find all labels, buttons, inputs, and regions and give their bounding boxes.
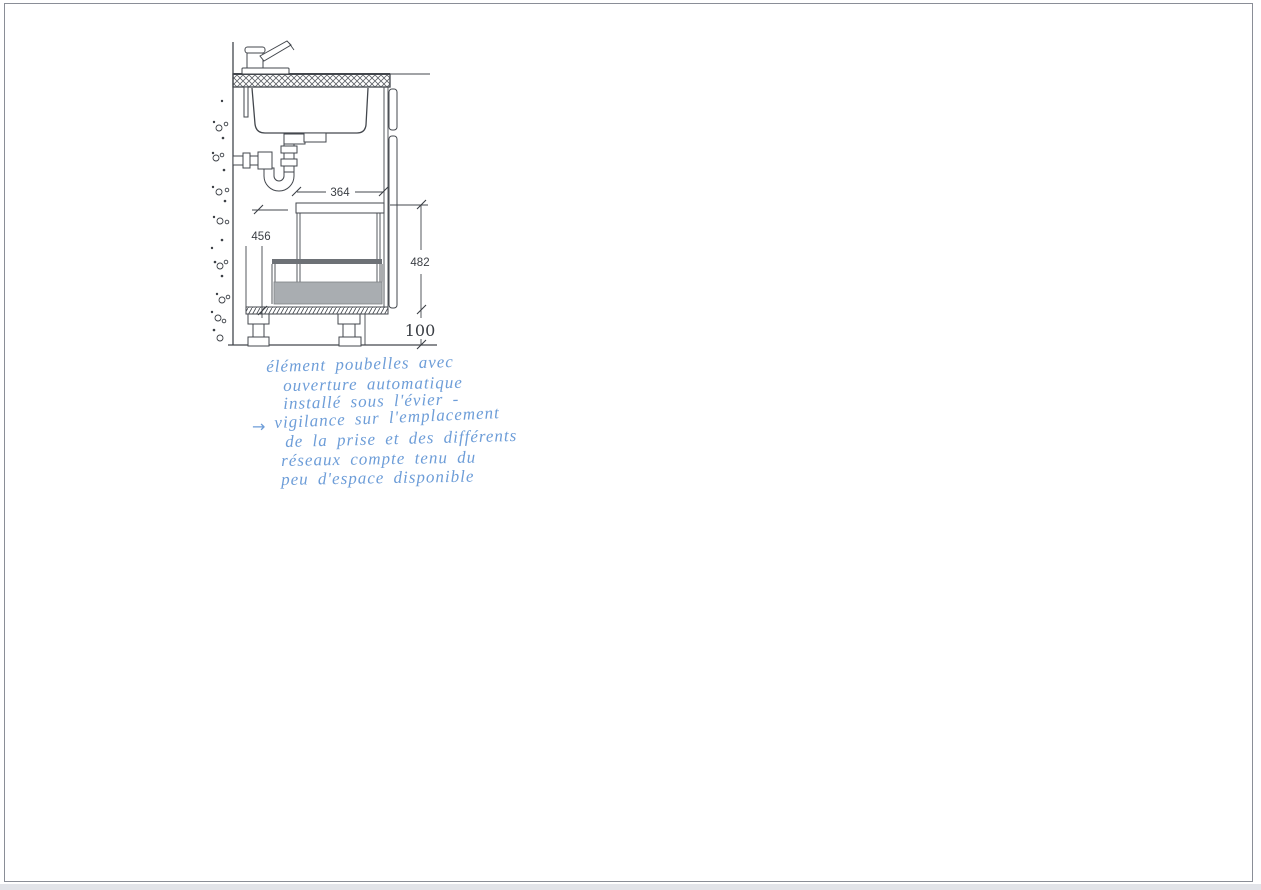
- technical-drawing: 364 456 482 100: [0, 0, 1261, 890]
- handwritten-arrow: →: [252, 417, 265, 436]
- wall-flange: [243, 153, 250, 168]
- pipe-coupling: [281, 146, 297, 153]
- bin-frame-top-rail: [296, 203, 384, 213]
- dim-label-100: 100: [405, 321, 436, 340]
- dim-label-364: 364: [330, 187, 350, 199]
- p-trap-drain: [233, 133, 326, 191]
- sink-bowl: [252, 88, 368, 133]
- handwritten-note-line-7: peu d'espace disponible: [281, 467, 475, 490]
- pipe-union: [258, 152, 272, 169]
- dim-label-456: 456: [251, 231, 270, 243]
- supply-pipe: [244, 87, 248, 117]
- cabinet-side-and-fronts: [384, 87, 397, 308]
- drain-elbow: [284, 134, 305, 144]
- cabinet-bottom-panel: [246, 307, 388, 314]
- drain-fitting: [304, 133, 326, 142]
- dim-label-482: 482: [410, 257, 429, 269]
- countertop: [233, 74, 430, 87]
- dimension-364: 364: [292, 187, 388, 199]
- faucet: [242, 41, 294, 74]
- dimension-100: 100: [405, 310, 436, 349]
- fixed-front-panel: [389, 89, 397, 130]
- bin-gray-container: [274, 282, 382, 304]
- left-foot: [248, 314, 269, 346]
- pullout-bin-unit: [272, 203, 384, 304]
- bubble-dots: [211, 100, 230, 341]
- right-foot: [338, 314, 361, 346]
- pipe-coupling: [281, 159, 297, 166]
- bin-top-rail: [272, 259, 382, 264]
- pullout-door-front: [389, 136, 397, 308]
